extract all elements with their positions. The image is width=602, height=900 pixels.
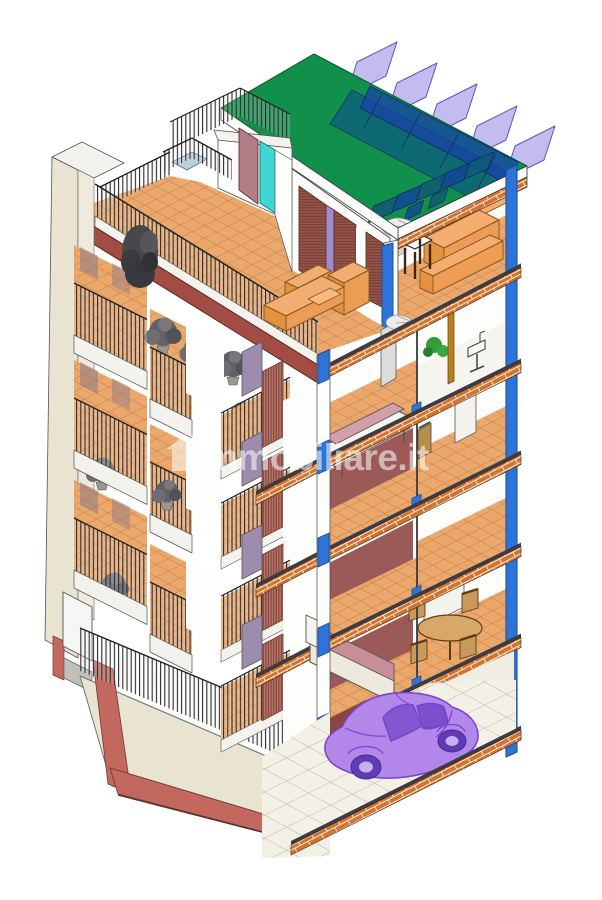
svg-text:mmobiliare.it: mmobiliare.it (205, 437, 429, 478)
